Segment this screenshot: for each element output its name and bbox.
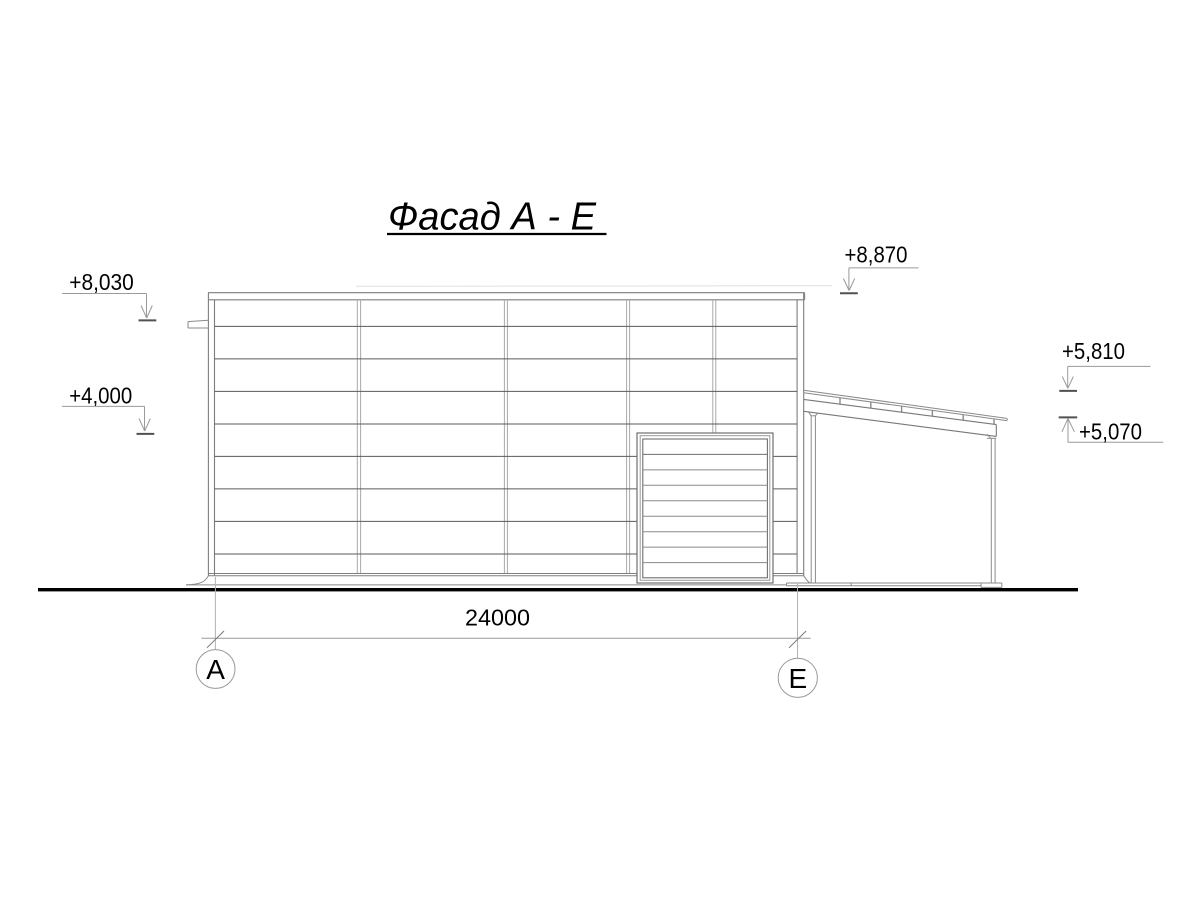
- svg-text:А: А: [206, 654, 225, 685]
- svg-text:+8,030: +8,030: [69, 269, 134, 295]
- svg-text:+5,070: +5,070: [1079, 419, 1142, 445]
- svg-text:24000: 24000: [465, 605, 530, 631]
- svg-text:Е: Е: [788, 663, 807, 694]
- svg-text:Фасад А - Е: Фасад А - Е: [388, 196, 597, 239]
- svg-text:+5,810: +5,810: [1062, 338, 1125, 364]
- svg-text:+4,000: +4,000: [69, 383, 132, 409]
- svg-text:+8,870: +8,870: [845, 242, 908, 268]
